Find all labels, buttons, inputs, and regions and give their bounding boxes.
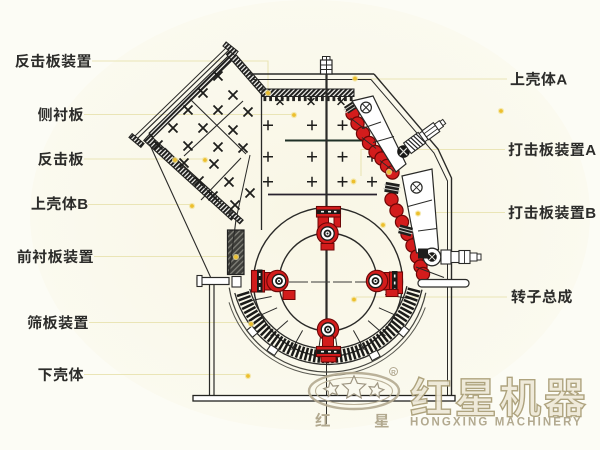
svg-text:HONGXING MACHINERY: HONGXING MACHINERY bbox=[410, 417, 583, 429]
svg-text:A: A bbox=[585, 142, 596, 159]
svg-text:B: B bbox=[77, 196, 88, 213]
svg-text:B: B bbox=[585, 205, 596, 222]
svg-text:R: R bbox=[391, 369, 396, 376]
svg-text:A: A bbox=[556, 72, 567, 89]
